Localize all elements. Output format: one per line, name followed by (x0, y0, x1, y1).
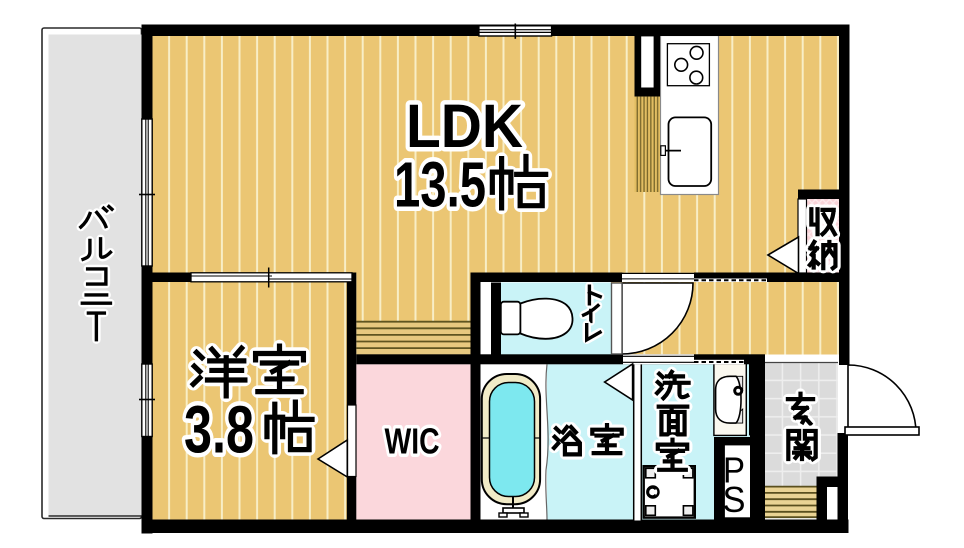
svg-text:S: S (723, 479, 746, 520)
svg-text:13.5: 13.5 (394, 149, 486, 221)
svg-text:WIC: WIC (385, 421, 440, 462)
svg-text:3.8: 3.8 (184, 393, 254, 468)
